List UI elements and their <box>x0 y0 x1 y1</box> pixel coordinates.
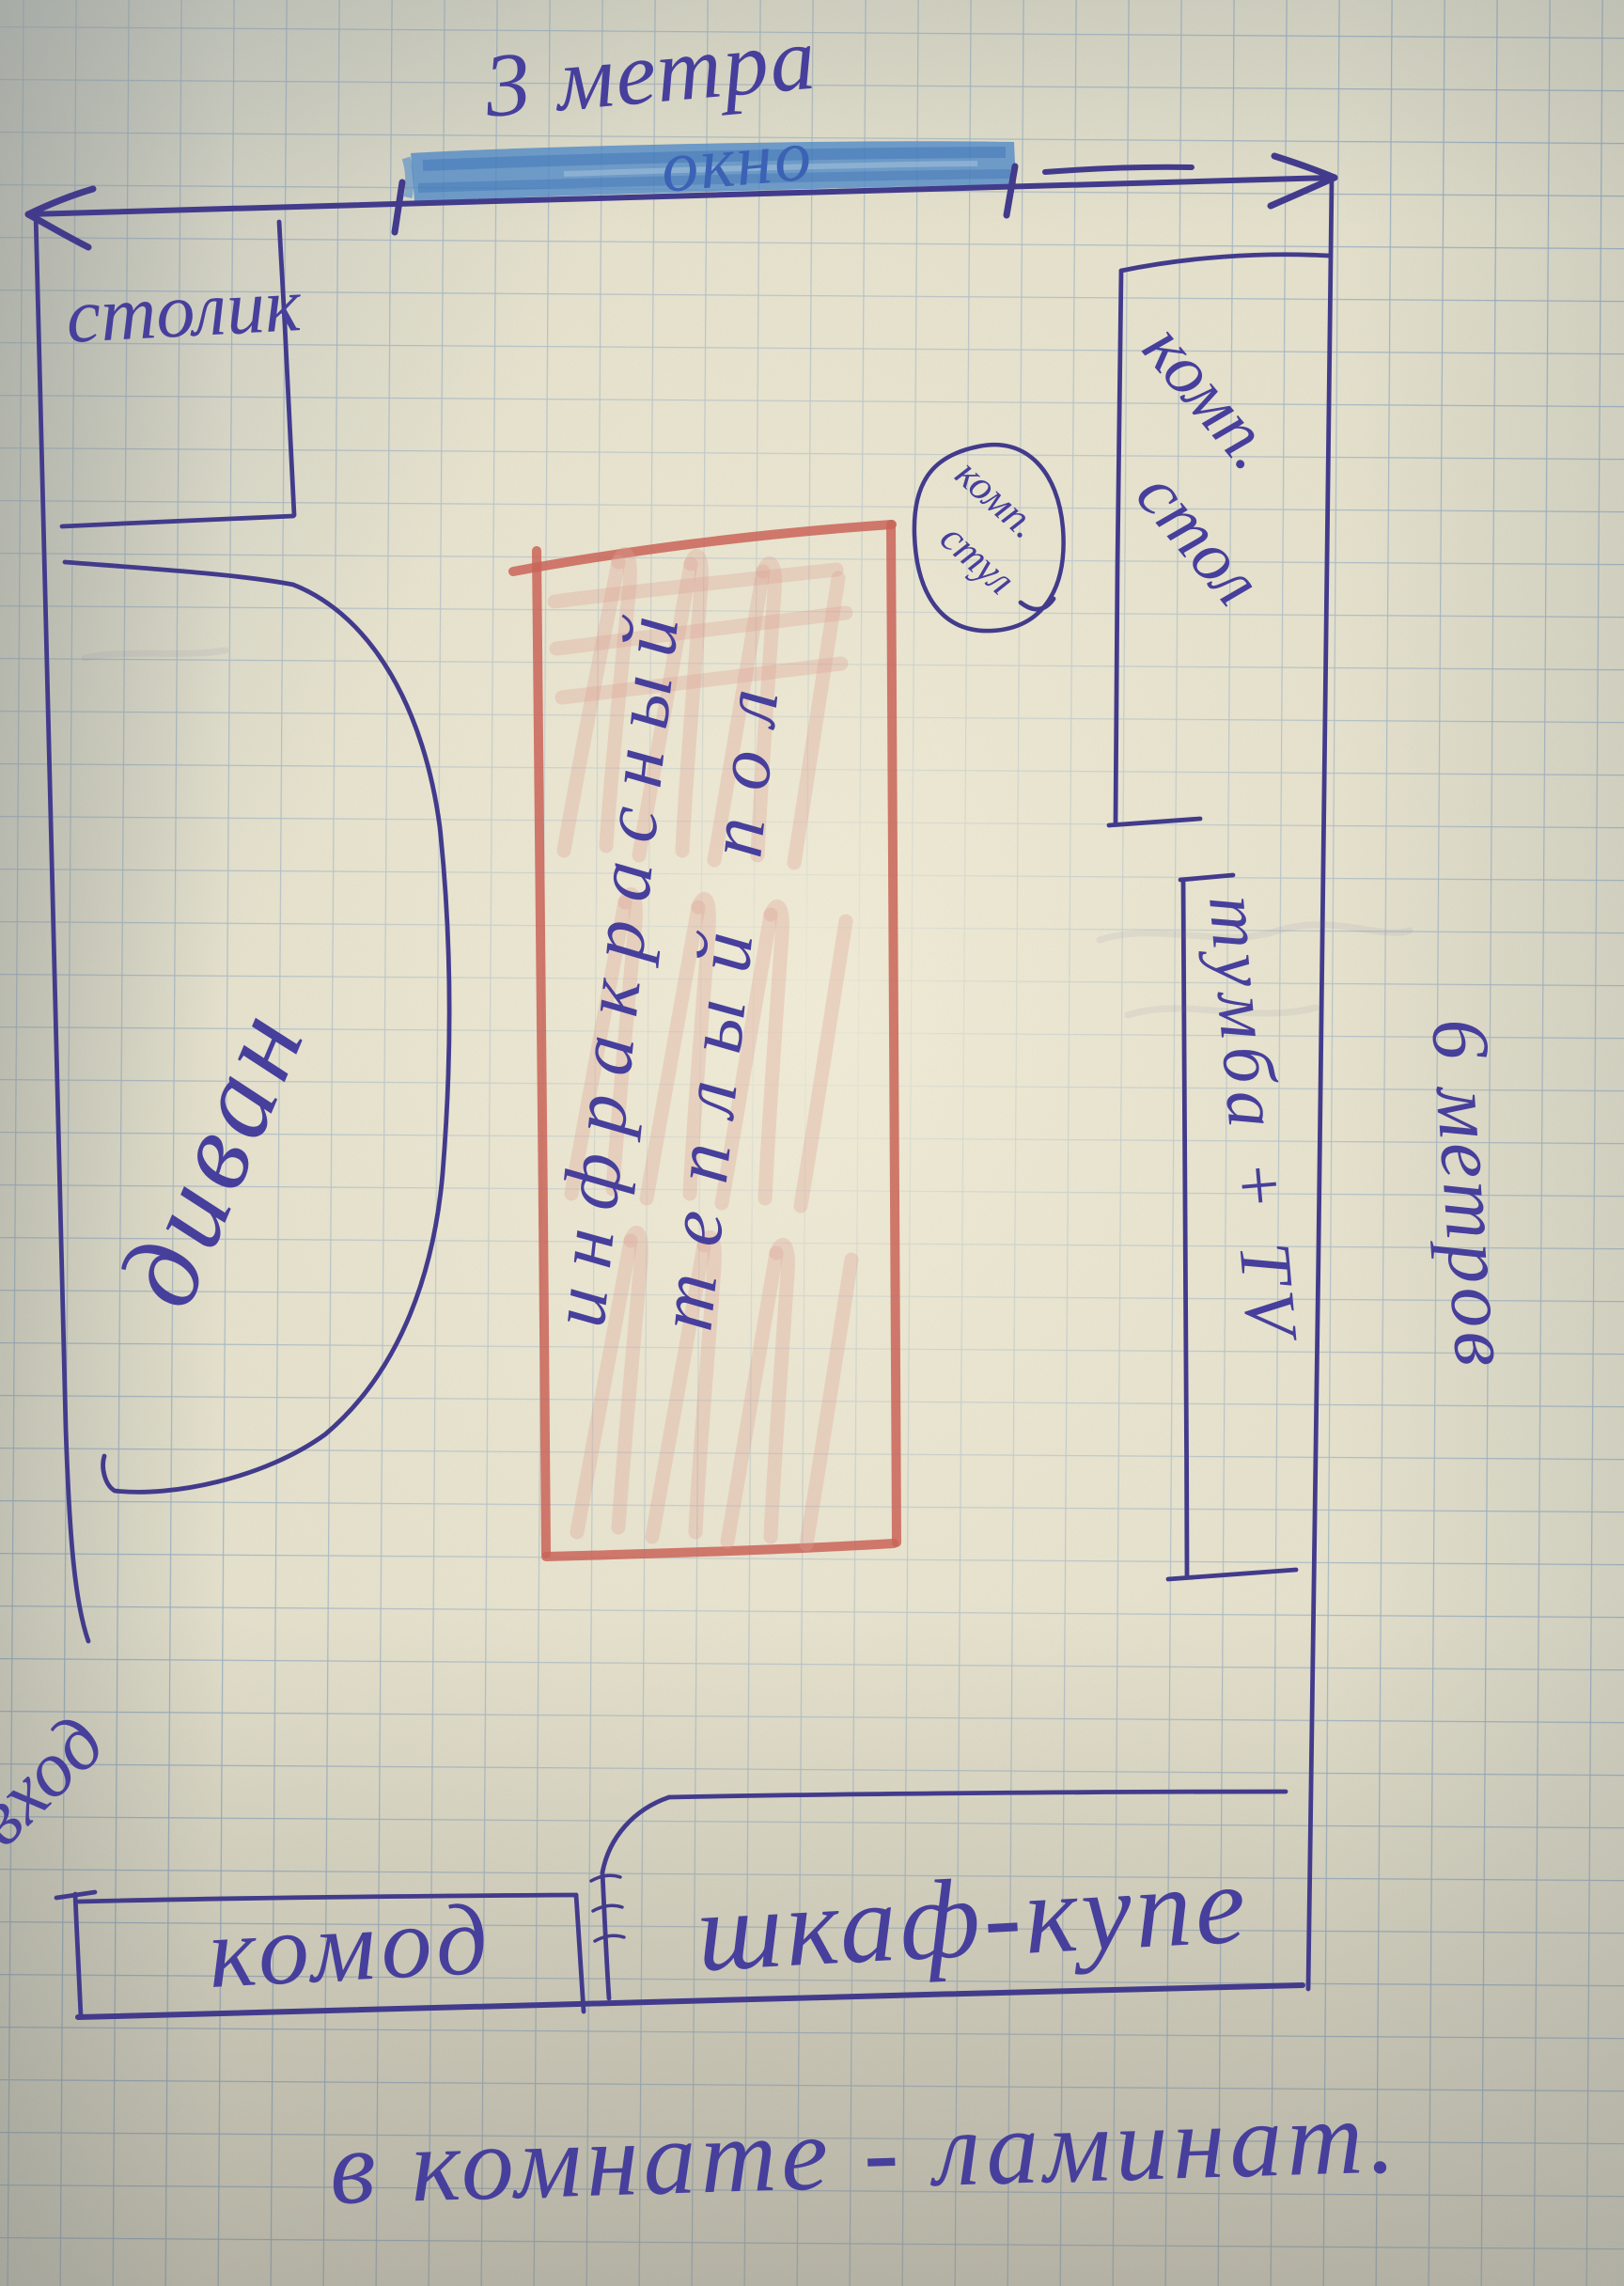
svg-text:окно: окно <box>658 113 816 208</box>
svg-text:столик: столик <box>64 261 304 359</box>
svg-text:комод: комод <box>206 1883 495 2010</box>
